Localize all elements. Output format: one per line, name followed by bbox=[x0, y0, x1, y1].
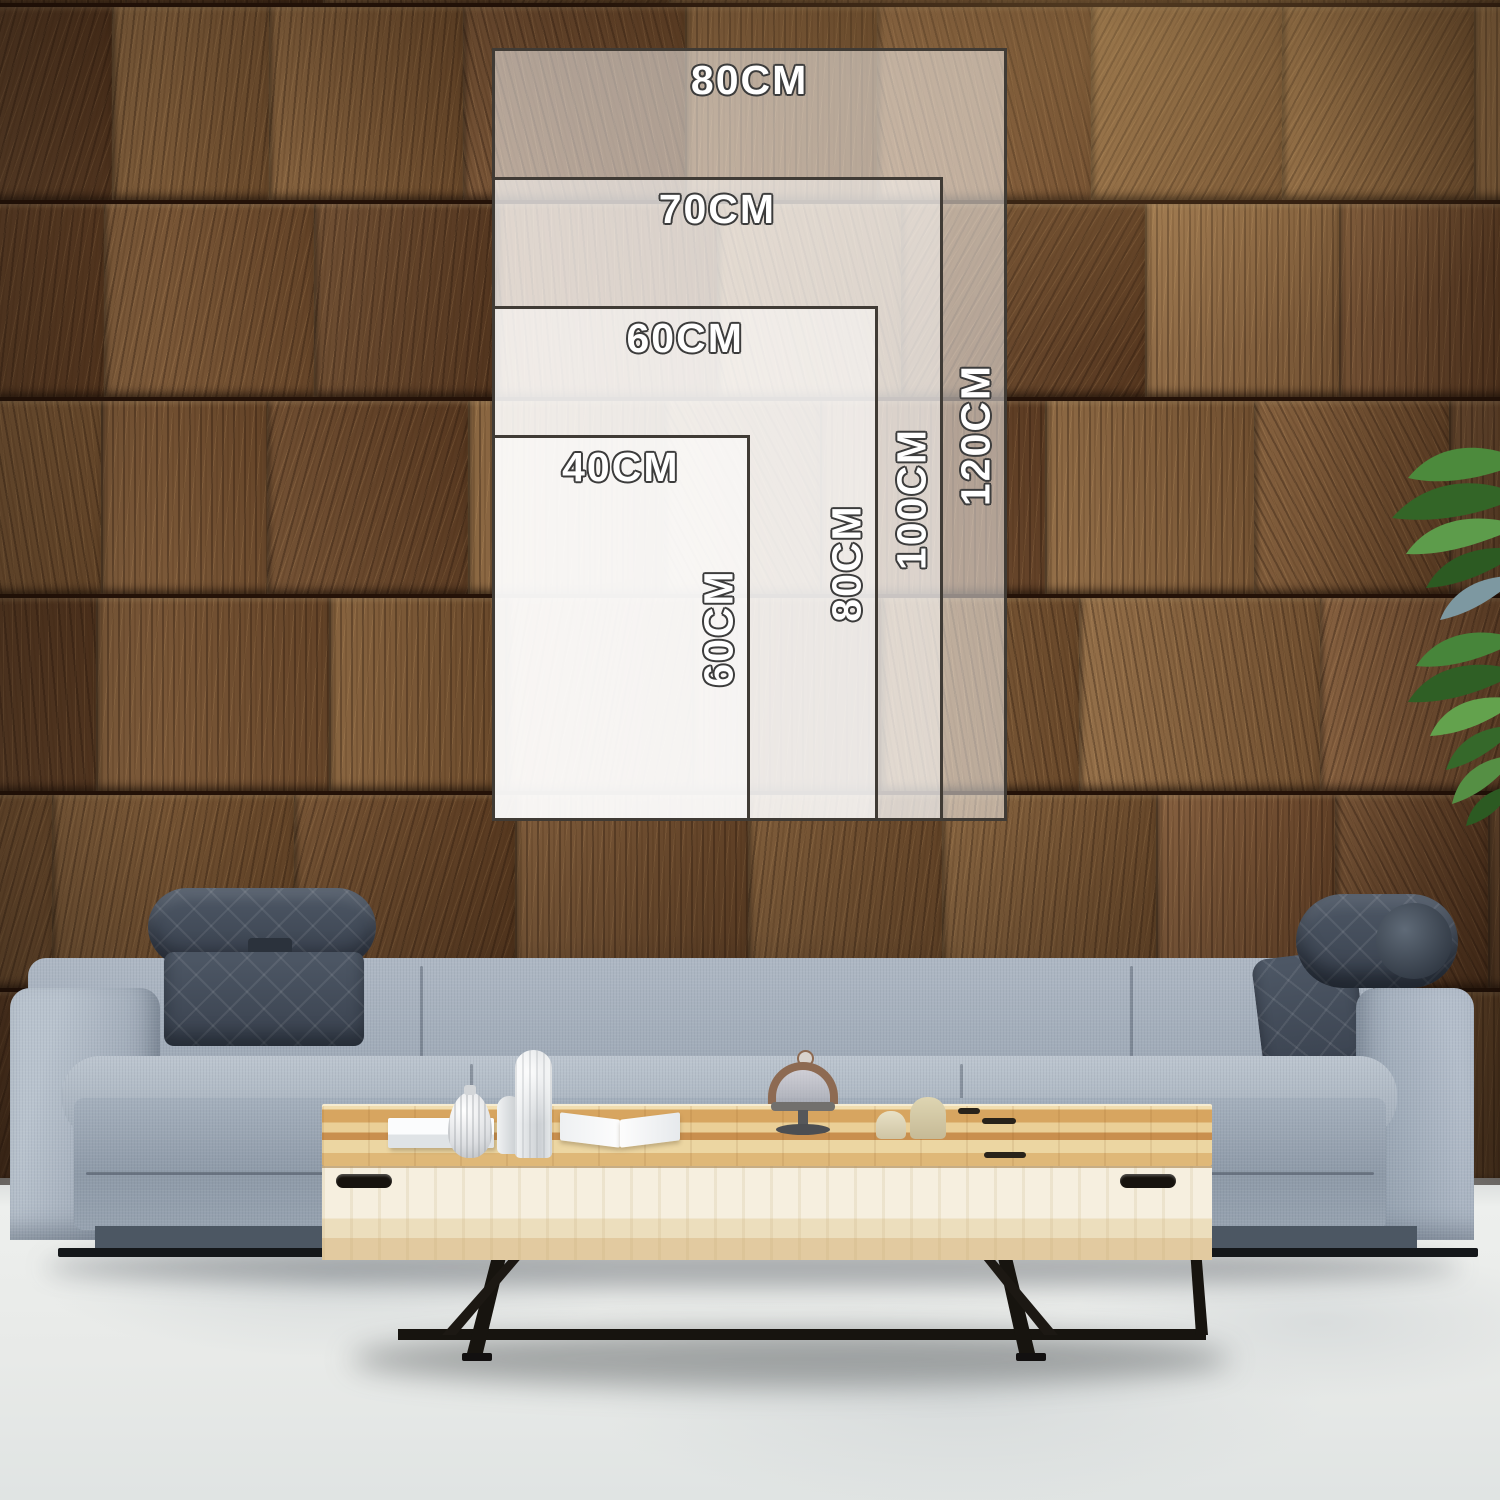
size-width-label-40: 40CM bbox=[562, 447, 679, 488]
wood-tile bbox=[988, 0, 1182, 3]
wood-tile bbox=[1382, 0, 1500, 3]
wood-tile bbox=[1145, 204, 1341, 397]
table-legs bbox=[390, 1245, 1220, 1365]
wood-tile bbox=[267, 401, 470, 594]
wood-tile bbox=[834, 0, 990, 3]
wood-tile bbox=[1282, 7, 1476, 200]
wood-tile bbox=[125, 0, 325, 3]
plant-leaves bbox=[1392, 448, 1500, 826]
wood-tile bbox=[329, 598, 509, 791]
decor-cloche bbox=[768, 1058, 838, 1140]
headrest-bolster-right bbox=[1296, 894, 1458, 988]
wood-tile bbox=[1079, 598, 1322, 791]
size-width-label-60: 60CM bbox=[627, 318, 744, 359]
wood-tile bbox=[0, 204, 106, 397]
wood-tile bbox=[101, 401, 269, 594]
decor-open-book bbox=[560, 1112, 680, 1146]
size-height-label-100: 100CM bbox=[891, 428, 932, 570]
wood-tile bbox=[669, 0, 836, 3]
wood-tile bbox=[512, 0, 671, 3]
wood-tile bbox=[104, 204, 316, 397]
wood-tile bbox=[323, 0, 514, 3]
wood-row bbox=[0, 0, 1500, 7]
drawer-handle-right bbox=[1120, 1174, 1176, 1188]
wood-tile bbox=[0, 7, 114, 200]
plant bbox=[1378, 426, 1500, 826]
bolster-end-cap bbox=[1376, 903, 1452, 979]
wood-tile bbox=[1045, 401, 1256, 594]
size-height-label-80: 80CM bbox=[827, 505, 868, 622]
wood-tile bbox=[1091, 7, 1284, 200]
size-width-label-80: 80CM bbox=[691, 60, 808, 101]
wood-tile bbox=[1180, 0, 1384, 3]
wood-tile bbox=[1339, 204, 1500, 397]
wood-tile bbox=[314, 204, 499, 397]
wood-tile bbox=[0, 0, 127, 3]
product-size-mockup: 80CM120CM70CM100CM60CM80CM40CM60CM bbox=[0, 0, 1500, 1500]
wood-tile bbox=[112, 7, 271, 200]
headrest-left-panel bbox=[164, 952, 364, 1046]
wood-tile bbox=[0, 598, 98, 791]
decor-vase-tall bbox=[515, 1050, 552, 1158]
table-front bbox=[322, 1166, 1212, 1260]
size-height-label-60: 60CM bbox=[698, 569, 739, 686]
size-height-label-120: 120CM bbox=[956, 364, 997, 506]
drawer-handle-left bbox=[336, 1174, 392, 1188]
wood-tile bbox=[96, 598, 331, 791]
wood-tile bbox=[0, 401, 103, 594]
decor-candle-short bbox=[876, 1111, 906, 1139]
size-width-label-70: 70CM bbox=[659, 189, 776, 230]
decor-candle-tall bbox=[910, 1097, 946, 1139]
wood-tile bbox=[269, 7, 465, 200]
wood-tile bbox=[1474, 7, 1500, 200]
